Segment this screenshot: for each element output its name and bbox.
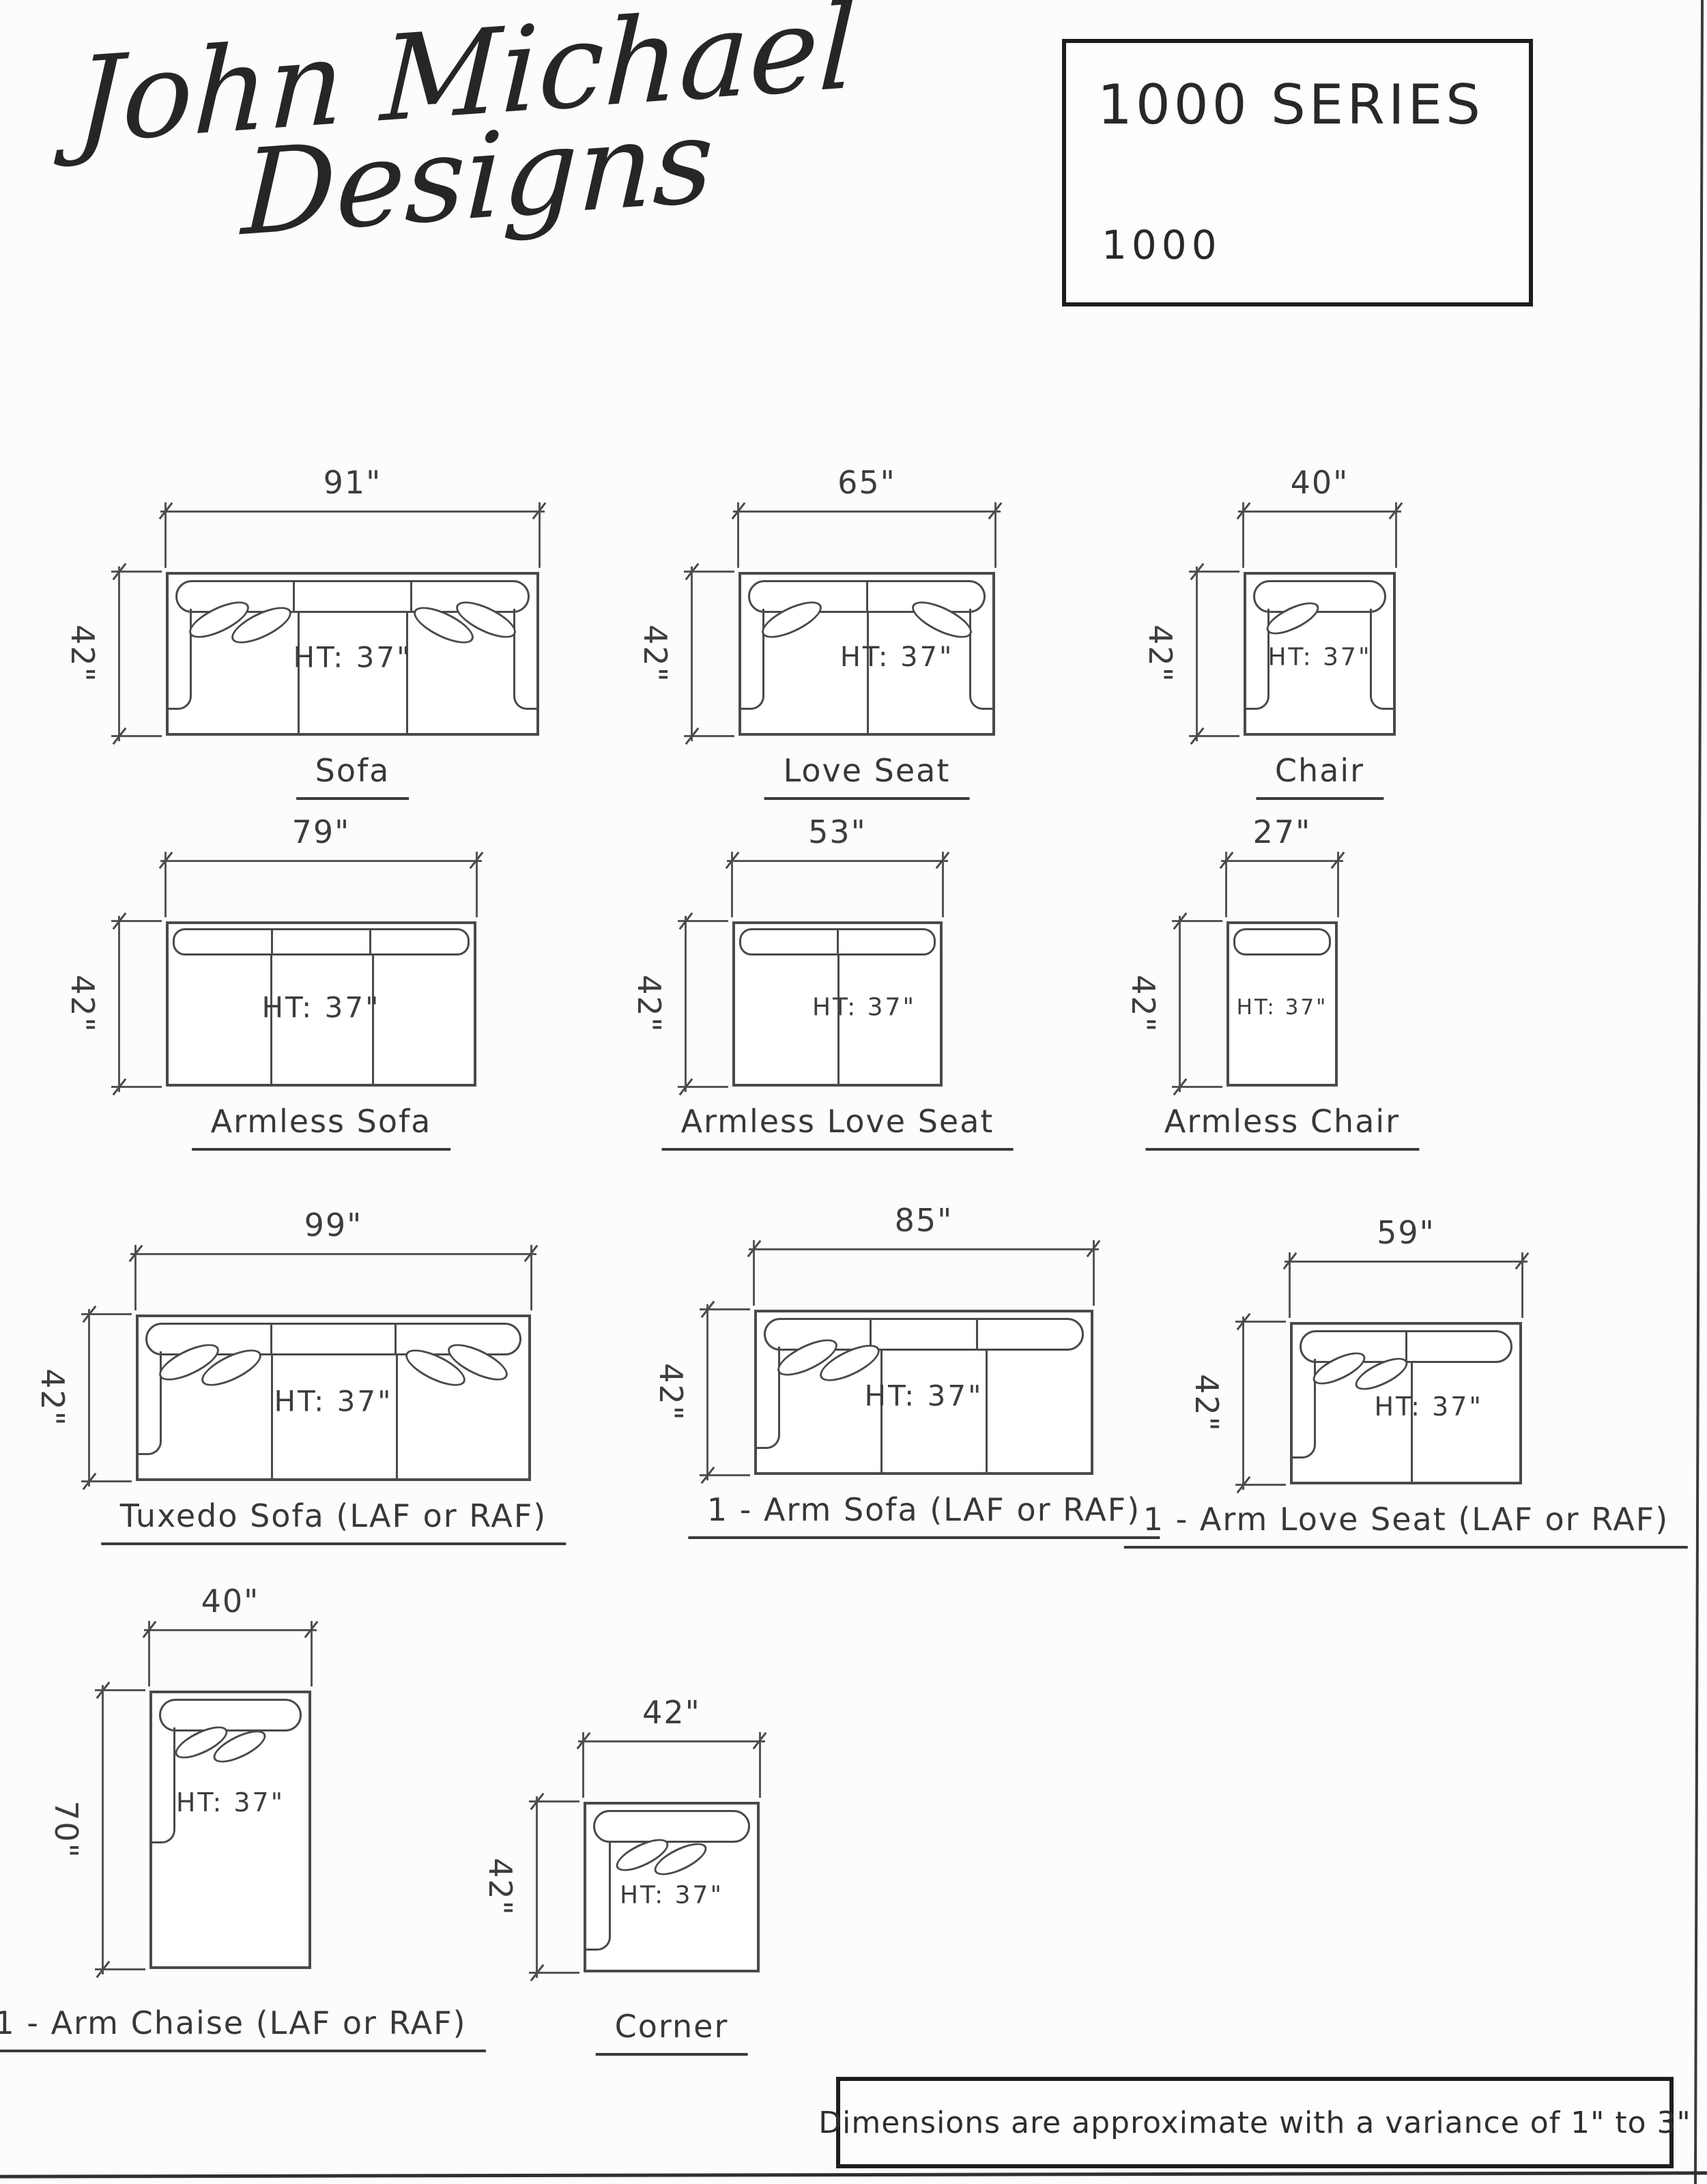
- furniture-outline: HT: 37": [738, 572, 995, 736]
- seat-divider: [1411, 1362, 1413, 1482]
- depth-label: 42": [1142, 624, 1179, 683]
- diagram-sofa: 91" 42" HT: 37" Sofa: [166, 572, 539, 736]
- back-cushion: [270, 1323, 397, 1355]
- depth-label: 42": [64, 975, 101, 1033]
- depth-label: 42": [631, 975, 668, 1033]
- furniture-name: 1 - Arm Chaise (LAF or RAF): [0, 2005, 486, 2052]
- back-cushions: [739, 928, 936, 955]
- scan-edge-vertical: [1694, 0, 1704, 2184]
- diagram-corner: 42" 42" HT: 37" Corner: [584, 1802, 760, 1972]
- furniture-outline: HT: 37": [166, 572, 539, 736]
- width-dim-line: [160, 511, 545, 513]
- width-label: 65": [837, 464, 896, 501]
- diagram-one-arm-chaise: 40" 70" HT: 37" 1 - Arm Chaise (LAF or R…: [149, 1691, 311, 1969]
- depth-label: 42": [64, 624, 101, 683]
- depth-dim-line: [118, 566, 120, 741]
- right-arm: [1370, 609, 1393, 710]
- depth-dim-line: [685, 916, 687, 1092]
- diagram-armless-sofa: 79" 42" HT: 37" Armless Sofa: [166, 921, 476, 1087]
- width-dim-line: [144, 1629, 317, 1631]
- furniture-outline: HT: 37": [149, 1691, 311, 1969]
- furniture-outline: HT: 37": [1290, 1322, 1522, 1484]
- back-cushions: [159, 1699, 302, 1732]
- left-arm: [152, 1727, 175, 1843]
- furniture-name: Armless Love Seat: [662, 1103, 1014, 1151]
- seat-divider: [271, 1354, 273, 1478]
- left-arm: [1246, 609, 1270, 710]
- width-label: 99": [304, 1207, 363, 1244]
- height-label: HT: 37": [812, 993, 916, 1021]
- furniture-name: 1 - Arm Love Seat (LAF or RAF): [1124, 1501, 1688, 1549]
- width-label: 59": [1377, 1214, 1435, 1251]
- right-arm: [513, 609, 536, 710]
- furniture-name: Chair: [1256, 752, 1383, 800]
- furniture-name: 1 - Arm Sofa (LAF or RAF): [688, 1491, 1160, 1539]
- depth-label: 42": [637, 624, 674, 683]
- back-cushions: [1253, 580, 1386, 613]
- height-label: HT: 37": [1375, 1392, 1483, 1422]
- width-label: 79": [292, 814, 351, 850]
- depth-dim-line: [536, 1796, 538, 1978]
- width-dim-line: [733, 511, 1001, 513]
- back-cushion: [293, 580, 412, 613]
- width-dim-line: [749, 1248, 1099, 1250]
- back-cushion: [1233, 928, 1331, 955]
- furniture-name: Armless Sofa: [192, 1103, 451, 1151]
- diagram-one-arm-love-seat: 59" 42" HT: 37" 1 - Arm Love Seat (LAF o…: [1290, 1322, 1522, 1484]
- depth-dim-line: [691, 566, 693, 741]
- width-dim-line: [160, 860, 482, 862]
- width-label: 42": [642, 1694, 701, 1731]
- scan-edge-horizontal: [0, 2171, 1707, 2178]
- back-cushion: [976, 1318, 1084, 1351]
- height-label: HT: 37": [620, 1882, 723, 1910]
- depth-dim-line: [706, 1304, 708, 1480]
- depth-label: 42": [482, 1858, 519, 1916]
- depth-dim-line: [1196, 566, 1198, 741]
- seat-divider: [986, 1349, 988, 1472]
- height-label: HT: 37": [840, 642, 954, 673]
- left-arm: [139, 1351, 162, 1455]
- furniture-outline: HT: 37": [1227, 921, 1338, 1087]
- width-label: 27": [1253, 814, 1312, 850]
- furniture-outline: HT: 37": [732, 921, 943, 1087]
- depth-dim-line: [102, 1685, 104, 1974]
- furniture-outline: HT: 37": [1244, 572, 1396, 736]
- height-label: HT: 37": [1237, 995, 1328, 1020]
- diagram-love-seat: 65" 42" HT: 37" Love Seat: [738, 572, 995, 736]
- width-label: 53": [808, 814, 867, 850]
- width-dim-line: [578, 1740, 765, 1742]
- left-arm: [757, 1347, 780, 1449]
- width-dim-line: [1238, 511, 1401, 513]
- diagram-one-arm-sofa: 85" 42" HT: 37" 1 - Arm Sofa (LAF or RAF…: [754, 1310, 1093, 1475]
- back-cushions: [1233, 928, 1331, 955]
- depth-dim-line: [1179, 916, 1181, 1092]
- series-title-box: 1000 SERIES 1000: [1062, 39, 1533, 306]
- depth-dim-line: [1242, 1317, 1244, 1490]
- height-label: HT: 37": [274, 1384, 393, 1418]
- furniture-name: Tuxedo Sofa (LAF or RAF): [101, 1497, 566, 1545]
- height-label: HT: 37": [176, 1787, 285, 1817]
- left-arm: [1293, 1359, 1316, 1459]
- back-cushions: [593, 1810, 750, 1843]
- width-label: 40": [201, 1583, 260, 1620]
- back-cushions: [173, 928, 470, 955]
- width-label: 91": [324, 464, 382, 501]
- back-cushion: [1253, 580, 1386, 613]
- back-cushion: [1405, 1330, 1513, 1363]
- furniture-name: Corner: [596, 2008, 748, 2056]
- logo-line-2: Designs: [240, 98, 775, 253]
- width-label: 85": [895, 1202, 953, 1239]
- disclaimer-text: Dimensions are approximate with a varian…: [818, 2106, 1691, 2140]
- width-dim-line: [1285, 1261, 1527, 1263]
- back-cushion: [739, 928, 839, 955]
- back-cushions: [1300, 1330, 1512, 1363]
- furniture-name: Armless Chair: [1145, 1103, 1419, 1151]
- back-cushion: [159, 1699, 302, 1732]
- furniture-outline: HT: 37": [136, 1314, 531, 1481]
- back-cushion: [369, 928, 470, 955]
- back-cushion: [870, 1318, 977, 1351]
- right-arm: [969, 609, 992, 710]
- depth-label: 42": [34, 1368, 71, 1427]
- height-label: HT: 37": [865, 1379, 984, 1412]
- series-title: 1000 SERIES: [1098, 73, 1484, 136]
- series-model-number: 1000: [1102, 222, 1222, 268]
- furniture-outline: HT: 37": [166, 921, 476, 1087]
- spec-sheet-page: John Michael Designs 1000 SERIES 1000 91…: [0, 0, 1707, 2184]
- diagram-tuxedo-sofa: 99" 42" HT: 37" Tuxedo Sofa (LAF or RAF): [136, 1314, 531, 1481]
- height-label: HT: 37": [1267, 643, 1371, 671]
- furniture-outline: HT: 37": [584, 1802, 760, 1972]
- seat-divider: [396, 1354, 398, 1478]
- left-arm: [169, 609, 192, 710]
- furniture-name: Love Seat: [764, 752, 970, 800]
- diagram-armless-love-seat: 53" 42" HT: 37" Armless Love Seat: [732, 921, 943, 1087]
- depth-dim-line: [118, 916, 120, 1092]
- width-dim-line: [1221, 860, 1343, 862]
- left-arm: [586, 1841, 611, 1951]
- depth-label: 42": [652, 1363, 689, 1422]
- back-cushion: [593, 1810, 750, 1843]
- depth-label: 42": [1188, 1374, 1225, 1433]
- depth-label: 42": [1125, 975, 1162, 1033]
- back-cushion: [271, 928, 371, 955]
- diagram-armless-chair: 27" 42" HT: 37" Armless Chair: [1227, 921, 1338, 1087]
- back-cushions: [748, 580, 986, 613]
- width-dim-line: [727, 860, 948, 862]
- width-label: 40": [1291, 464, 1349, 501]
- disclaimer-box: Dimensions are approximate with a varian…: [836, 2077, 1674, 2168]
- diagram-chair: 40" 42" HT: 37" Chair: [1244, 572, 1396, 736]
- back-cushion: [173, 928, 273, 955]
- depth-label: 70": [48, 1800, 85, 1859]
- company-logo: John Michael Designs: [67, 0, 779, 345]
- depth-dim-line: [88, 1309, 90, 1486]
- height-label: HT: 37": [293, 640, 412, 674]
- left-arm: [741, 609, 764, 710]
- width-dim-line: [130, 1253, 536, 1255]
- height-label: HT: 37": [262, 990, 381, 1024]
- back-cushion: [837, 928, 936, 955]
- furniture-name: Sofa: [296, 752, 410, 800]
- furniture-outline: HT: 37": [754, 1310, 1093, 1475]
